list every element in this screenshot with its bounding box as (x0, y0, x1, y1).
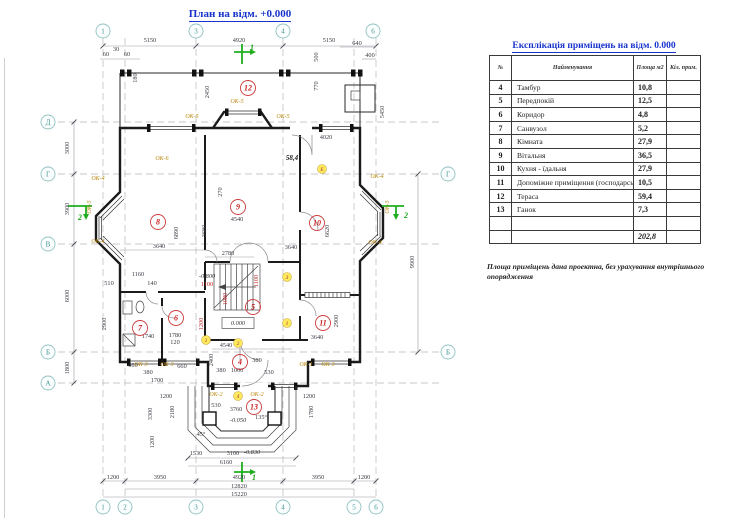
room-number-label: 11 (319, 319, 327, 328)
dim-label: 1160 (132, 271, 144, 278)
dim-label: 1080 (222, 293, 229, 306)
dim-label: 1780 (308, 406, 315, 419)
dim-label: 135° (255, 414, 267, 421)
window-tag-label: ОК-6 (155, 156, 168, 162)
cell-name: Вітальня (512, 148, 634, 162)
window-tag-label: ОК-4 (91, 238, 104, 245)
dim-label: 3950 (154, 474, 167, 481)
dim-label: 45° (197, 431, 206, 438)
room-table-body: 4Тамбур10,85Передпокій12,56Коридор4,87Са… (490, 81, 701, 231)
dim-label: 660 (177, 363, 186, 370)
table-row: 5Передпокій12,5 (490, 94, 701, 108)
cell-num (490, 216, 512, 230)
cell-name: Ганок (512, 203, 634, 217)
cell-cnt (667, 135, 701, 149)
dim-label: 6160 (220, 459, 233, 466)
dim-label: 140 (147, 280, 156, 287)
room-number-label: 10 (313, 219, 321, 228)
grid-axis-label: Г (46, 171, 50, 179)
table-row: 13Ганок7,3 (490, 203, 701, 217)
window-tag-label: ОК-2 (209, 392, 222, 398)
porch-column (203, 412, 216, 425)
table-header-row: № Найменування Площа м2 Кіл. прим. (490, 56, 701, 81)
dim-label: 1200 (198, 318, 205, 331)
cell-num: 5 (490, 94, 512, 108)
dim-label: 180 (132, 73, 139, 82)
grid-axis-label: Б (446, 349, 450, 357)
dim-label: 1740 (142, 333, 155, 340)
table-row: 11Допоміжне приміщення (господарське)10,… (490, 176, 701, 190)
dim-label: 1100 (253, 275, 260, 287)
level-label: -0.830 (244, 449, 261, 456)
cell-num: 9 (490, 148, 512, 162)
dim-label: 15220 (231, 491, 247, 498)
dim-label: 1000 (231, 367, 244, 374)
room-number-label: 4 (237, 358, 242, 367)
room-explication-table: № Найменування Площа м2 Кіл. прим. 4Тамб… (489, 55, 701, 244)
table-row: 8Кімната27,9 (490, 135, 701, 149)
porch-column (268, 412, 281, 425)
window-tag-label: ОК-4 (368, 239, 381, 246)
dim-label: 380 (143, 369, 152, 376)
dim-label: 3680 (201, 225, 208, 238)
table-row: 7Санвузол5,2 (490, 121, 701, 135)
table-row: 4Тамбур10,8 (490, 81, 701, 95)
dim-label: 120 (170, 339, 179, 346)
cell-cnt (667, 203, 701, 217)
dim-label: 1800 (64, 362, 71, 375)
dim-label: 3950 (312, 474, 325, 481)
window-tag-label: ОК-4 (91, 175, 104, 182)
plan-labels: 5150492051506030601806404005007702450545… (64, 37, 416, 498)
grid-axis-label: А (45, 380, 50, 388)
room-number-label: 6 (174, 314, 178, 323)
stair-direction-arrow (218, 284, 226, 290)
cell-area: 5,2 (634, 121, 667, 135)
dim-label: 2900 (333, 315, 340, 328)
room-number-label: 9 (236, 203, 240, 212)
cell-num: 8 (490, 135, 512, 149)
dim-label: 4540 (231, 216, 244, 223)
cell-num: 10 (490, 162, 512, 176)
cell-area: 12,5 (634, 94, 667, 108)
cell-num: 4 (490, 81, 512, 95)
window-ok5-bay-top (225, 109, 262, 117)
dim-label: 1200 (107, 474, 120, 481)
room-number-label: 5 (251, 303, 255, 312)
window-tag-label: ОК-5 (276, 114, 289, 120)
header-area: Площа м2 (634, 56, 667, 81)
cell-name: Тамбур (512, 81, 634, 95)
cell-name: Передпокій (512, 94, 634, 108)
window-ok5-north-left (147, 124, 196, 132)
window-ok5-north-right (319, 124, 354, 132)
dim-label: 1700 (151, 377, 164, 384)
cell-num: 13 (490, 203, 512, 217)
dim-label: 6620 (324, 225, 331, 238)
grid-axis-label: 6 (374, 504, 378, 512)
cell-name: Кухня - їдальня (512, 162, 634, 176)
dim-label: 3640 (311, 334, 324, 341)
door-tag-label: 3 (285, 275, 289, 281)
cell-name (512, 216, 634, 230)
dim-label: 1200 (160, 393, 173, 400)
level-label: 0.000 (231, 320, 246, 327)
window-tag-label: ОК-3 (160, 362, 173, 368)
cell-area: 27,9 (634, 135, 667, 149)
grid-axis-label: 3 (194, 504, 198, 512)
dim-label: 2450 (204, 86, 211, 99)
cell-name: Допоміжне приміщення (господарське) (512, 176, 634, 190)
window-tag-label: ОК-5 (185, 114, 198, 120)
dim-label: 5150 (144, 37, 157, 44)
total-empty-name (512, 230, 634, 244)
cell-name: Санвузол (512, 121, 634, 135)
grid-axis-label: 1 (101, 28, 105, 36)
window-tag-label: ОК-5 (385, 200, 391, 213)
dim-label: 60 (124, 51, 130, 58)
dim-label: 2180 (169, 406, 176, 419)
dim-label: 4540 (220, 342, 233, 349)
door-tag-label: 1 (286, 321, 289, 327)
floor-plan-canvas: 5150492051506030601806404005007702450545… (0, 0, 470, 529)
cell-cnt (667, 176, 701, 190)
cell-cnt (667, 94, 701, 108)
room-number-label: 13 (250, 403, 258, 412)
dim-label: 380 (216, 367, 225, 374)
cell-num: 7 (490, 121, 512, 135)
cell-num: 11 (490, 176, 512, 190)
dim-label: 1100 (201, 281, 213, 288)
grid-axis-label: 6 (371, 28, 375, 36)
dim-label: 1200 (149, 436, 156, 449)
dim-label: 1530 (190, 450, 203, 457)
table-row: 6Коридор4,8 (490, 108, 701, 122)
cell-area: 36,5 (634, 148, 667, 162)
dim-label: 5450 (379, 106, 386, 119)
dim-label: 3900 (64, 203, 71, 216)
cell-name: Коридор (512, 108, 634, 122)
window-tag-label: ОК-5 (87, 200, 93, 213)
dim-label: 510 (104, 280, 113, 287)
grid-axis-label: 5 (352, 504, 356, 512)
grid-axis-label: В (46, 241, 51, 249)
dim-label: 2900 (101, 318, 108, 331)
section-number-label: 2 (403, 211, 408, 220)
door-tag-label: 4 (237, 393, 240, 400)
grid-axis-label: Д (46, 119, 51, 127)
cell-name: Тераса (512, 189, 634, 203)
total-area: 202,8 (634, 230, 667, 244)
dim-label: 1780 (169, 332, 182, 339)
dim-label: 3000 (64, 142, 71, 155)
dim-label: 770 (313, 81, 320, 90)
cell-area: 10,5 (634, 176, 667, 190)
dim-label: 12820 (231, 483, 247, 490)
drawing-sheet: План на відм. +0.000 (0, 0, 748, 529)
cell-cnt (667, 216, 701, 230)
door-tag-label: 1 (205, 338, 208, 344)
dim-label: 530 (264, 369, 273, 376)
header-count: Кіл. прим. (667, 56, 701, 81)
cell-cnt (667, 81, 701, 95)
table-row: 10Кухня - їдальня27,9 (490, 162, 701, 176)
table-total-row: 202,8 (490, 230, 701, 244)
window-tag-label: ОК-5 (230, 99, 243, 105)
room-number-label: 8 (156, 218, 160, 227)
header-num: № (490, 56, 512, 81)
dim-label: 3640 (153, 243, 166, 250)
section-number-label: 1 (252, 473, 256, 482)
dim-label: 1200 (303, 393, 316, 400)
table-note: Площа приміщень дана проектна, без ураху… (487, 262, 705, 283)
cell-area: 7,3 (634, 203, 667, 217)
window-tag-label: ОК-3 (321, 362, 334, 368)
dim-label: 60 (103, 51, 109, 58)
dim-label: 30 (113, 46, 119, 53)
dim-label: 400 (365, 52, 374, 59)
dim-label: 380 (252, 357, 261, 364)
cell-num: 12 (490, 189, 512, 203)
dim-label: 270 (217, 187, 224, 196)
cell-area: 27,9 (634, 162, 667, 176)
grid-axis-label: 3 (194, 28, 198, 36)
cell-name: Кімната (512, 135, 634, 149)
dim-label: 500 (313, 52, 320, 61)
cell-cnt (667, 189, 701, 203)
dim-label: 9900 (409, 256, 416, 269)
window-tag-label: ОК-1 (299, 362, 312, 368)
cell-cnt (667, 108, 701, 122)
dim-label: 640 (352, 40, 361, 47)
grid-axis-label: 4 (281, 28, 285, 36)
grid-axis-label: Г (446, 171, 450, 179)
dim-label: 4020 (320, 134, 333, 141)
table-row (490, 216, 701, 230)
header-name: Найменування (512, 56, 634, 81)
dim-label: 3300 (147, 408, 154, 421)
total-empty-num (490, 230, 512, 244)
dim-label: 530 (211, 402, 220, 409)
dim-label: 3640 (285, 244, 298, 251)
level-label: -0.800 (199, 273, 216, 280)
cell-area: 59,4 (634, 189, 667, 203)
level-label: -0.050 (230, 417, 247, 424)
dim-label: 6890 (173, 227, 180, 240)
cell-num: 6 (490, 108, 512, 122)
dim-label: 4920 (233, 474, 246, 481)
dim-label: 2780 (222, 250, 235, 257)
section-number-label: 1 (250, 43, 254, 52)
window-tag-label: ОК-3 (134, 362, 147, 368)
cell-area: 4,8 (634, 108, 667, 122)
door-tag-label: 2 (237, 341, 240, 347)
door-tag-label: Е (319, 167, 324, 173)
cell-cnt (667, 121, 701, 135)
table-title: Експлікація приміщень на відм. 0.000 (487, 41, 701, 51)
window-band-kitchen (305, 292, 350, 298)
table-row: 12Тераса59,4 (490, 189, 701, 203)
grid-axis-label: 1 (101, 504, 105, 512)
dim-label: 6000 (64, 290, 71, 303)
dim-label: 58,4 (286, 154, 299, 162)
section-number-label: 2 (77, 213, 82, 222)
grid-axis-label: 4 (281, 504, 285, 512)
total-empty-count (667, 230, 701, 244)
room-number-label: 12 (244, 84, 252, 93)
grid-axis-label: 2 (123, 504, 127, 512)
cell-area (634, 216, 667, 230)
table-row: 9Вітальня36,5 (490, 148, 701, 162)
grid-axis-label: Б (46, 349, 50, 357)
dim-label: 4920 (233, 37, 246, 44)
cell-cnt (667, 162, 701, 176)
dim-label: 3760 (230, 406, 243, 413)
cell-cnt (667, 148, 701, 162)
dim-label: 2400 (208, 354, 215, 367)
dim-label: 1200 (358, 474, 371, 481)
cell-area: 10,8 (634, 81, 667, 95)
dim-label: 5150 (323, 37, 336, 44)
room-number-label: 7 (138, 324, 143, 333)
window-tag-label: ОК-4 (370, 173, 383, 180)
window-tag-label: ОК-2 (250, 392, 263, 398)
dim-label: 3100 (227, 450, 240, 457)
table-title-text: Експлікація приміщень на відм. 0.000 (512, 41, 675, 53)
